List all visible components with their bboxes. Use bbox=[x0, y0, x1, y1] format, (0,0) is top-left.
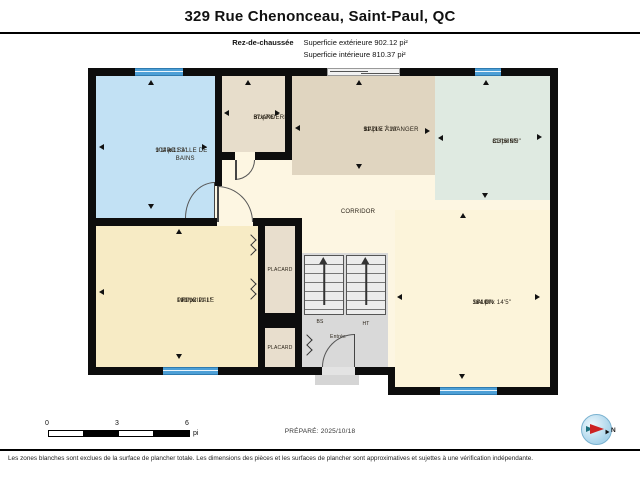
north-label: N bbox=[611, 427, 616, 434]
wall-primary-right bbox=[258, 226, 265, 367]
dimension-arrow-icon bbox=[202, 144, 207, 150]
dimension-arrow-icon bbox=[356, 80, 362, 85]
primary-door-leaf bbox=[217, 186, 219, 222]
dimension-arrow-icon bbox=[148, 204, 154, 209]
entry-door-threshold bbox=[322, 367, 355, 375]
north-arrow-icon bbox=[606, 430, 610, 435]
stairs-basement-label: BS bbox=[310, 319, 330, 325]
wall-primary-top-right bbox=[253, 218, 302, 226]
dimension-arrow-icon bbox=[483, 80, 489, 85]
page-title: 329 Rue Chenonceau, Saint-Paul, QC bbox=[0, 8, 640, 25]
scale-tick-3: 3 bbox=[115, 420, 119, 427]
room-closet-1: PLACARD bbox=[265, 226, 295, 313]
wall-primary-top-left bbox=[96, 218, 217, 226]
floor-areas: Superficie extérieure 902.12 pi² Superfi… bbox=[304, 38, 408, 62]
wall-laundry-right bbox=[285, 76, 292, 160]
dimension-arrow-icon bbox=[356, 164, 362, 169]
stairs-up-arrow-icon bbox=[365, 263, 367, 305]
scale-tick-6: 6 bbox=[185, 420, 189, 427]
prepared-date: PRÉPARÉ: 2025/10/18 bbox=[0, 428, 640, 435]
room-kitchen: CUISINE 8'3" x 9'9" 81 pi² bbox=[435, 76, 550, 200]
dimension-arrow-icon bbox=[438, 135, 443, 141]
patio-panel bbox=[330, 71, 368, 72]
stairs-upper bbox=[346, 255, 386, 315]
closet1-label: PLACARD bbox=[267, 267, 292, 273]
room-dining: SALLE À MANGER 11'7" x 7'10" 91 pi² bbox=[292, 76, 435, 175]
dimension-arrow-icon bbox=[535, 294, 540, 300]
wall-stairs-left bbox=[295, 226, 302, 367]
footer-disclaimer: Les zones blanches sont exclues de la su… bbox=[8, 455, 632, 462]
stairs-up-arrow-icon bbox=[323, 263, 325, 305]
wall-bathroom-right bbox=[215, 76, 222, 186]
entry-stoop bbox=[315, 375, 359, 385]
exterior-area: Superficie extérieure 902.12 pi² bbox=[304, 38, 408, 47]
dimension-arrow-icon bbox=[245, 80, 251, 85]
stairs-upper-label: HT bbox=[356, 321, 376, 327]
dimension-arrow-icon bbox=[148, 80, 154, 85]
floor-summary: Rez-de-chaussée Superficie extérieure 90… bbox=[0, 38, 640, 62]
laundry-door-leaf bbox=[235, 160, 237, 180]
stairs-basement bbox=[304, 255, 344, 315]
wall-laundry-bottom-right bbox=[255, 152, 285, 160]
dimension-arrow-icon bbox=[99, 289, 104, 295]
dimension-arrow-icon bbox=[459, 374, 465, 379]
window-primary bbox=[163, 367, 218, 375]
dimension-arrow-icon bbox=[176, 229, 182, 234]
dimension-arrow-icon bbox=[482, 193, 488, 198]
dimension-arrow-icon bbox=[275, 110, 280, 116]
window-bathroom bbox=[135, 68, 183, 76]
dimension-arrow-icon bbox=[176, 354, 182, 359]
dimension-arrow-icon bbox=[537, 134, 542, 140]
header-divider bbox=[0, 32, 640, 34]
compass-needle-icon bbox=[590, 424, 604, 434]
floor-plan: SALON 11'10" x 14'5" 164 pi² 4PC SALLE D… bbox=[88, 68, 558, 395]
wall-closet-mid bbox=[265, 313, 295, 328]
dimension-arrow-icon bbox=[295, 125, 300, 131]
window-living bbox=[440, 387, 497, 395]
dimension-arrow-icon bbox=[425, 128, 430, 134]
corridor-label: CORRIDOR bbox=[323, 209, 393, 215]
wall-laundry-bottom-left bbox=[222, 152, 235, 160]
patio-panel bbox=[361, 73, 399, 74]
interior-area: Superficie intérieure 810.37 pi² bbox=[304, 50, 408, 59]
scale-tick-0: 0 bbox=[45, 420, 49, 427]
closet2-label: PLACARD bbox=[267, 345, 292, 351]
dimension-arrow-icon bbox=[99, 144, 104, 150]
dimension-arrow-icon bbox=[397, 294, 402, 300]
window-kitchen bbox=[475, 68, 501, 76]
room-primary: PRINCIPALE 12'9" x 11'1" 141 pi² bbox=[96, 226, 258, 367]
floor-label: Rez-de-chaussée bbox=[232, 38, 293, 62]
entry-door-leaf bbox=[354, 334, 356, 367]
bathroom-door-leaf bbox=[214, 182, 216, 218]
room-living: SALON 11'10" x 14'5" 164 pi² bbox=[395, 210, 550, 387]
dimension-arrow-icon bbox=[224, 110, 229, 116]
dimension-arrow-icon bbox=[460, 213, 466, 218]
footer-divider bbox=[0, 449, 640, 451]
patio-door-dining bbox=[327, 68, 400, 76]
room-closet-2: PLACARD bbox=[265, 328, 295, 367]
